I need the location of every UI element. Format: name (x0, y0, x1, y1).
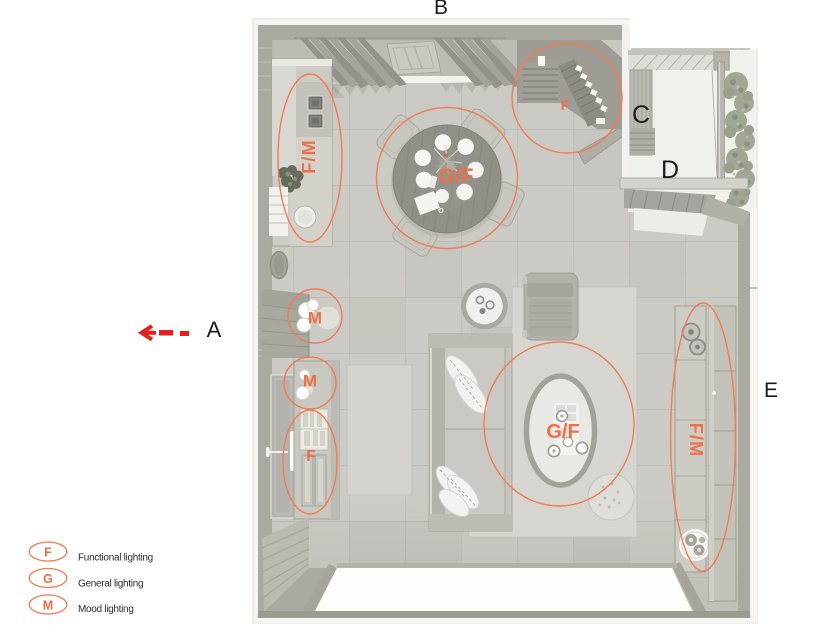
svg-text:F: F (44, 546, 52, 560)
svg-text:B: B (434, 0, 448, 19)
svg-text:F/M: F/M (686, 423, 706, 458)
svg-text:E: E (764, 379, 778, 402)
svg-text:A: A (207, 317, 222, 342)
svg-text:General lighting: General lighting (78, 578, 143, 589)
svg-text:G: G (43, 572, 53, 586)
svg-text:G/F: G/F (546, 421, 579, 443)
svg-text:M: M (43, 599, 53, 613)
svg-text:F: F (306, 448, 315, 465)
svg-text:D: D (661, 156, 679, 184)
svg-text:G/F: G/F (439, 165, 474, 188)
svg-text:M: M (303, 372, 317, 391)
svg-text:Mood lighting: Mood lighting (78, 604, 134, 615)
svg-text:C: C (632, 101, 650, 129)
svg-text:M: M (308, 309, 322, 328)
svg-text:F: F (561, 97, 570, 113)
svg-text:F/M: F/M (299, 139, 319, 174)
svg-text:Functional lighting: Functional lighting (78, 552, 153, 563)
